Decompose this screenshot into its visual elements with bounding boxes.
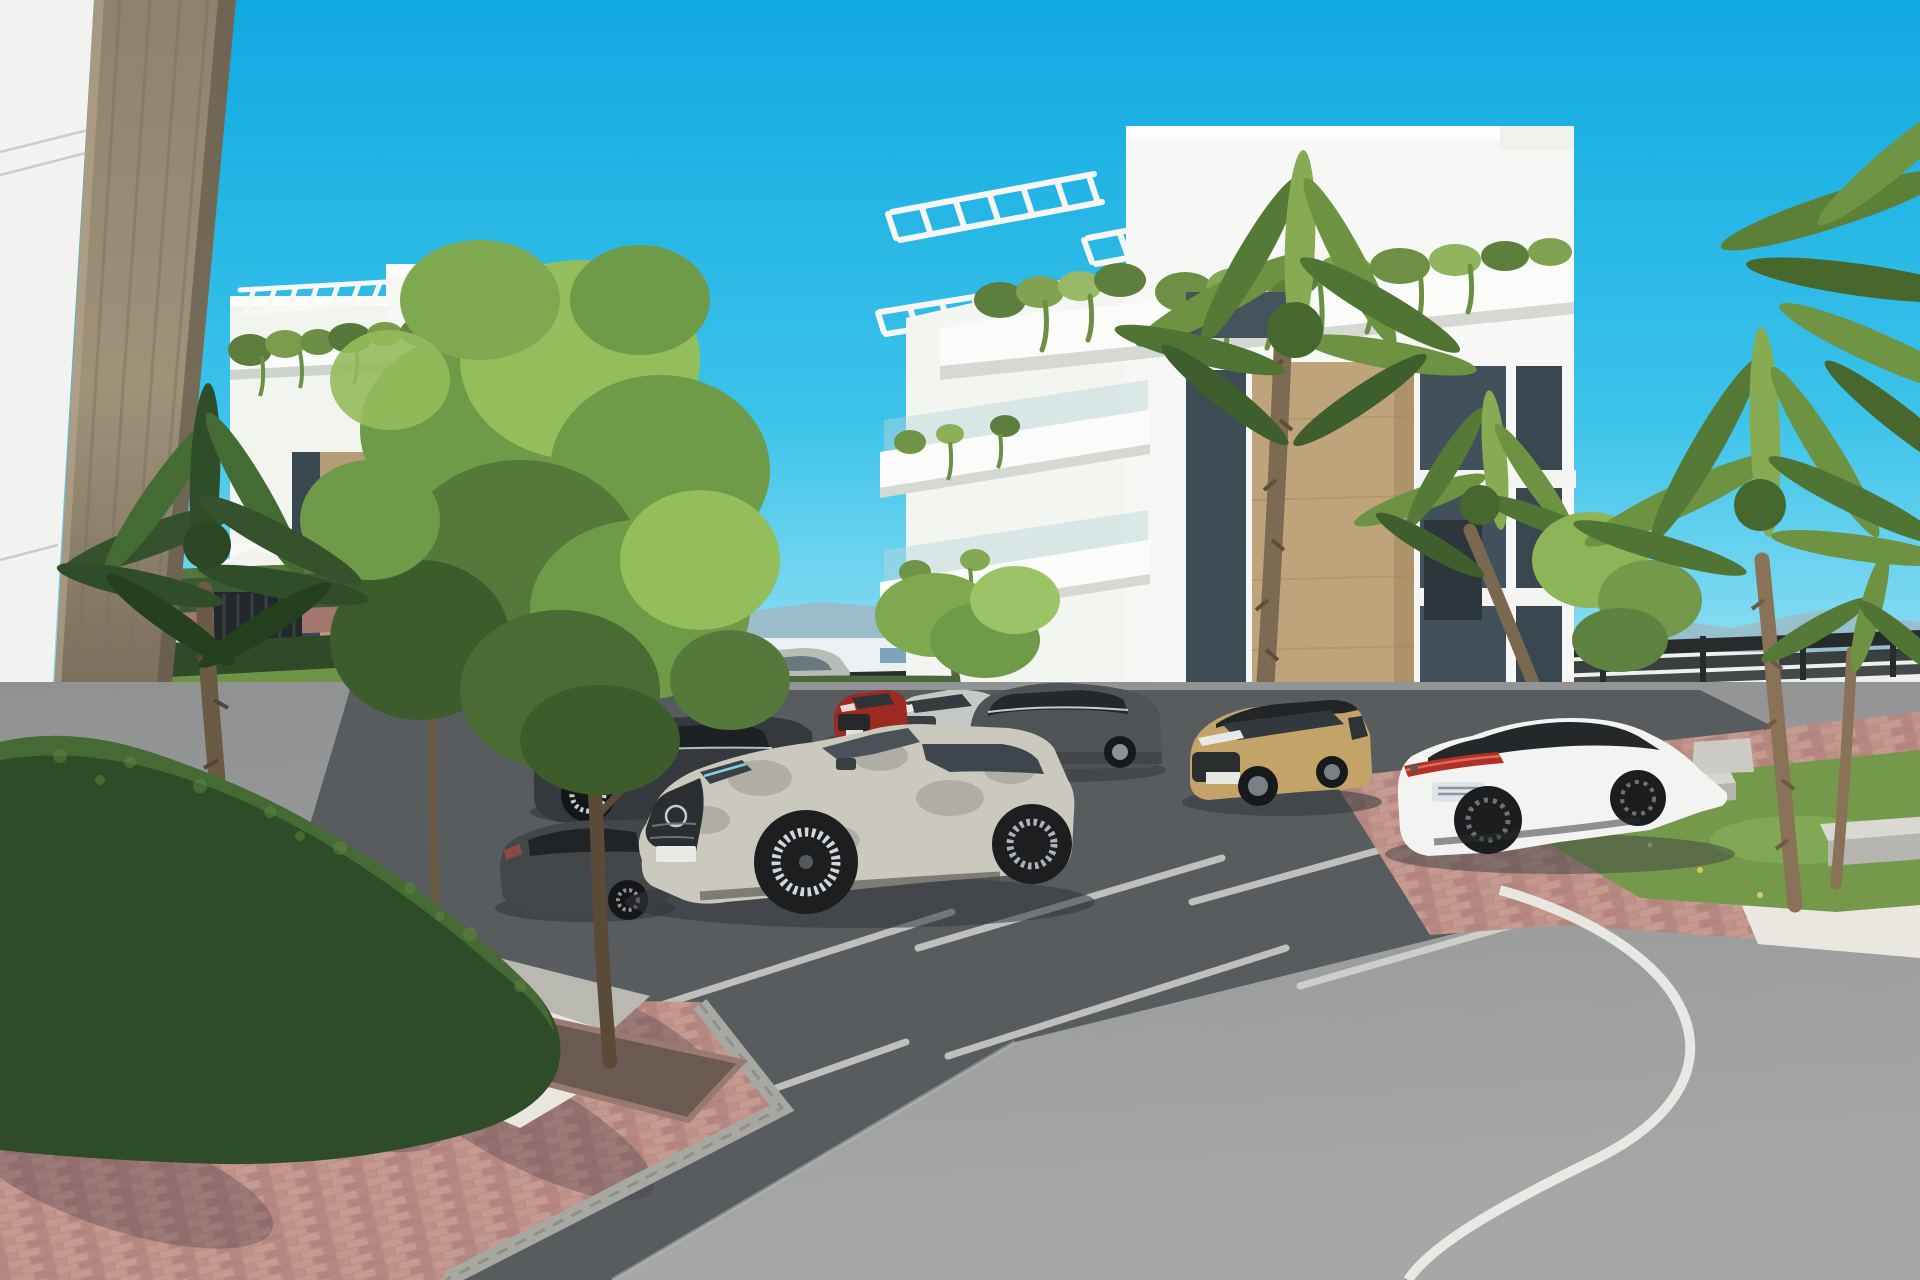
- scene-canvas: [0, 0, 1920, 1280]
- architectural-rendering: [0, 0, 1920, 1280]
- right-window-left: [1186, 370, 1246, 708]
- planter-cube: [1692, 738, 1754, 774]
